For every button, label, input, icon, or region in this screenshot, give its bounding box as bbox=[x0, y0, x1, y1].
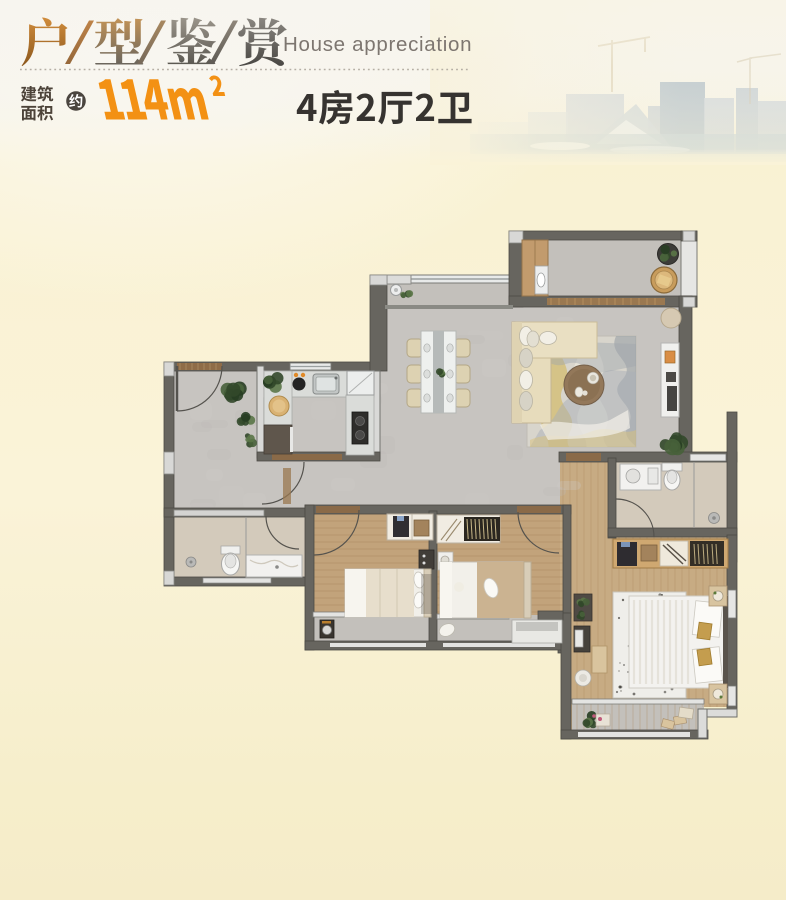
svg-text:House appreciation: House appreciation bbox=[283, 33, 472, 56]
